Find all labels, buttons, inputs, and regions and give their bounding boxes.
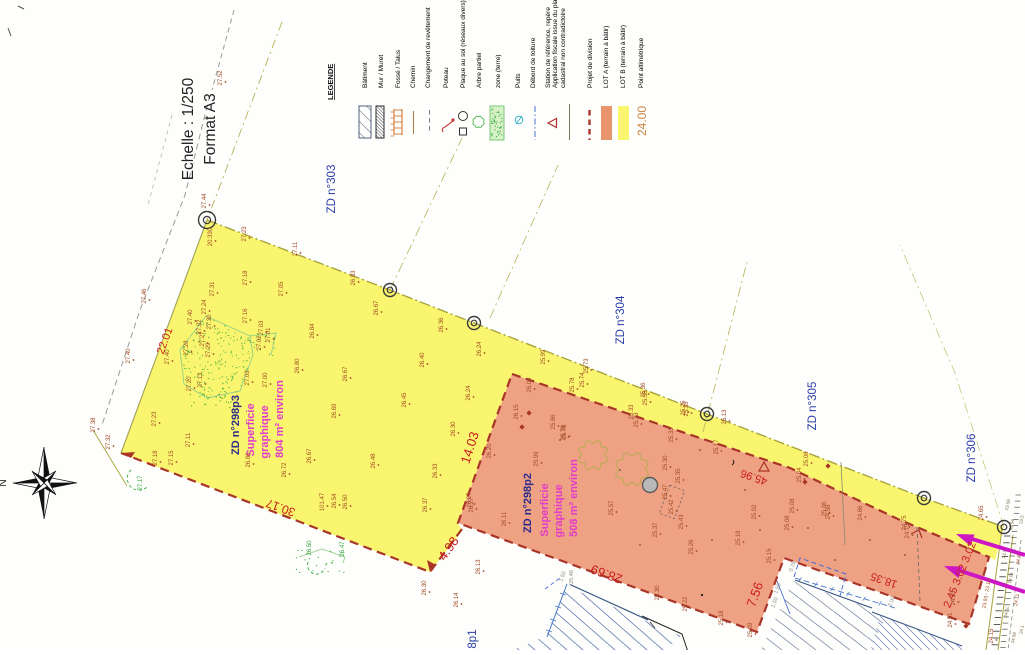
svg-text:25.30: 25.30 <box>655 585 661 601</box>
svg-text:25.17: 25.17 <box>714 439 720 455</box>
svg-text:27.03: 27.03 <box>245 370 251 386</box>
svg-text:24.00: 24.00 <box>635 106 649 136</box>
svg-text:25.73: 25.73 <box>584 358 590 374</box>
svg-text:Projet de division: Projet de division <box>587 38 594 88</box>
svg-text:26.72: 26.72 <box>282 462 288 478</box>
svg-text:Mur / Muret: Mur / Muret <box>378 55 385 88</box>
svg-text:26.20: 26.20 <box>487 443 493 459</box>
svg-text:24.75: 24.75 <box>905 523 911 539</box>
svg-text:27.52: 27.52 <box>218 70 224 86</box>
svg-text:27.05: 27.05 <box>279 281 285 297</box>
svg-text:24.66: 24.66 <box>858 505 864 521</box>
svg-text:25.99: 25.99 <box>534 451 540 467</box>
svg-text:20.330: 20.330 <box>208 227 214 246</box>
svg-text:25.35: 25.35 <box>676 468 682 484</box>
svg-text:25.47: 25.47 <box>663 484 669 500</box>
svg-text:Superficie: Superficie <box>539 483 551 536</box>
svg-text:25.08: 25.08 <box>785 515 791 531</box>
svg-text:25.04: 25.04 <box>797 467 803 483</box>
svg-text:26.11: 26.11 <box>502 511 508 526</box>
svg-text:27.24: 27.24 <box>202 299 208 315</box>
svg-text:Changement de revêtement: Changement de revêtement <box>425 7 432 88</box>
svg-text:27.23: 27.23 <box>152 411 158 427</box>
svg-text:27.11: 27.11 <box>186 432 192 447</box>
svg-text:26.67: 26.67 <box>307 448 313 464</box>
svg-text:25.09: 25.09 <box>748 622 754 638</box>
svg-text:26.80: 26.80 <box>295 358 301 374</box>
svg-text:26.30: 26.30 <box>451 421 457 437</box>
svg-text:508 m² environ: 508 m² environ <box>568 459 580 537</box>
svg-text:24.15: 24.15 <box>989 628 995 644</box>
svg-text:N: N <box>0 479 9 486</box>
svg-text:Bâtiment: Bâtiment <box>362 62 369 88</box>
svg-text:26.54: 26.54 <box>332 493 338 509</box>
svg-text:101.47: 101.47 <box>320 492 326 511</box>
svg-text:27.32: 27.32 <box>106 434 112 450</box>
svg-text:25.78: 25.78 <box>570 377 576 393</box>
svg-text:27.44: 27.44 <box>202 193 208 209</box>
svg-text:25.13: 25.13 <box>722 409 728 425</box>
svg-text:27.40: 27.40 <box>188 309 194 325</box>
svg-text:27.38: 27.38 <box>91 417 97 433</box>
svg-text:LEGENDE: LEGENDE <box>326 64 335 100</box>
svg-text:Puits: Puits <box>515 73 522 88</box>
svg-text:27.29: 27.29 <box>206 342 212 358</box>
svg-text:Point altimétrique: Point altimétrique <box>638 37 645 88</box>
svg-text:27.16: 27.16 <box>243 308 249 324</box>
svg-text:ZD n°298p2: ZD n°298p2 <box>522 473 534 533</box>
svg-text:LOT B (terrain à bâtir): LOT B (terrain à bâtir) <box>620 25 627 88</box>
svg-text:26.86: 26.86 <box>246 452 252 468</box>
svg-text:24.65: 24.65 <box>979 505 985 521</box>
svg-text:25.18: 25.18 <box>719 610 725 626</box>
svg-text:25.46: 25.46 <box>569 570 575 584</box>
svg-text:27.20: 27.20 <box>187 376 193 392</box>
svg-text:26.14: 26.14 <box>454 592 460 608</box>
svg-text:26.84: 26.84 <box>310 323 316 339</box>
svg-text:26.24: 26.24 <box>477 341 483 357</box>
svg-text:LOT A (terrain à bâtir): LOT A (terrain à bâtir) <box>603 26 610 88</box>
svg-text:26.67: 26.67 <box>374 300 380 316</box>
svg-text:Echelle : 1/250: Echelle : 1/250 <box>180 77 197 180</box>
svg-text:27.28: 27.28 <box>184 340 190 356</box>
svg-text:27.11: 27.11 <box>293 241 299 256</box>
svg-text:25.25: 25.25 <box>681 400 687 416</box>
svg-text:27.18: 27.18 <box>153 450 159 466</box>
svg-text:25.06: 25.06 <box>822 501 828 517</box>
svg-text:Station de référence, repère: Station de référence, repère <box>545 7 552 88</box>
svg-text:Arbre partiel: Arbre partiel <box>476 52 483 88</box>
svg-text:26.40: 26.40 <box>420 352 426 368</box>
svg-text:zone (terre): zone (terre) <box>495 54 502 88</box>
svg-text:804 m² environ: 804 m² environ <box>274 380 286 458</box>
svg-text:27.15: 27.15 <box>169 450 175 466</box>
svg-text:25.33: 25.33 <box>634 412 640 428</box>
svg-text:Chemin: Chemin <box>410 65 417 88</box>
svg-text:25.31: 25.31 <box>669 427 675 443</box>
svg-text:24.53: 24.53 <box>951 590 957 606</box>
svg-text:26.13: 26.13 <box>476 559 482 575</box>
svg-text:26.47: 26.47 <box>340 541 346 557</box>
svg-text:ZD n°305: ZD n°305 <box>807 382 819 431</box>
svg-text:25.42: 25.42 <box>669 499 675 515</box>
svg-text:25.36: 25.36 <box>643 390 649 406</box>
svg-text:27.40: 27.40 <box>165 349 171 365</box>
svg-text:8p1: 8p1 <box>467 629 479 648</box>
svg-text:25.78: 25.78 <box>561 425 567 441</box>
svg-text:25.30: 25.30 <box>663 455 669 471</box>
svg-text:26.50: 26.50 <box>343 494 349 510</box>
svg-text:26.50: 26.50 <box>307 540 313 556</box>
svg-text:25.99: 25.99 <box>541 349 547 365</box>
svg-text:27.18: 27.18 <box>243 270 249 286</box>
svg-text:ZD n°306: ZD n°306 <box>966 434 978 483</box>
svg-text:27.02: 27.02 <box>257 335 263 351</box>
svg-text:27.46: 27.46 <box>142 288 148 304</box>
svg-text:26.69: 26.69 <box>332 403 338 419</box>
svg-text:26.45: 26.45 <box>402 392 408 408</box>
svg-text:26.04: 26.04 <box>527 377 533 393</box>
svg-text:25.18: 25.18 <box>736 530 742 546</box>
svg-text:27.31: 27.31 <box>210 281 216 297</box>
svg-text:graphique: graphique <box>259 405 271 458</box>
svg-text:ZD n°303: ZD n°303 <box>326 165 338 214</box>
svg-text:27.17: 27.17 <box>138 475 144 491</box>
svg-text:26.24: 26.24 <box>466 385 472 401</box>
svg-text:25.26: 25.26 <box>689 539 695 555</box>
svg-text:25.08: 25.08 <box>790 498 796 514</box>
svg-text:26.15: 26.15 <box>514 404 520 420</box>
svg-text:26.36: 26.36 <box>439 317 445 333</box>
svg-text:27.00: 27.00 <box>263 372 269 388</box>
svg-text:25.43: 25.43 <box>679 514 685 530</box>
svg-text:27.01: 27.01 <box>266 327 272 343</box>
svg-text:26.33: 26.33 <box>433 463 439 479</box>
svg-text:Format A3: Format A3 <box>202 93 219 165</box>
svg-text:25.37: 25.37 <box>653 522 659 538</box>
svg-text:graphique: graphique <box>553 484 565 537</box>
svg-text:26.30: 26.30 <box>422 580 428 596</box>
svg-text:26.83: 26.83 <box>351 270 357 286</box>
svg-text:26.48: 26.48 <box>371 453 377 469</box>
svg-text:Débord de toiture: Débord de toiture <box>530 37 537 88</box>
svg-text:24.51: 24.51 <box>948 612 954 628</box>
svg-text:25.74: 25.74 <box>580 372 586 388</box>
svg-text:cadastral non contradictoire: cadastral non contradictoire <box>560 8 567 88</box>
svg-text:27.13: 27.13 <box>198 372 204 388</box>
svg-text:25.22: 25.22 <box>683 596 689 612</box>
svg-text:27.03: 27.03 <box>259 320 265 336</box>
svg-text:Superficie: Superficie <box>245 403 257 456</box>
svg-text:26.67: 26.67 <box>343 366 349 382</box>
svg-text:26.27: 26.27 <box>467 492 473 508</box>
svg-text:ZD n°298p3: ZD n°298p3 <box>230 395 242 455</box>
svg-text:Plaque au sol (réseaux divers): Plaque au sol (réseaux divers) <box>460 0 467 88</box>
svg-text:25.57: 25.57 <box>609 500 615 516</box>
svg-text:25.02: 25.02 <box>752 504 758 520</box>
svg-text:ZD n°304: ZD n°304 <box>615 295 627 344</box>
svg-text:Application fiscale issue du p: Application fiscale issue du plan <box>552 0 559 88</box>
svg-text:27.40: 27.40 <box>126 348 132 364</box>
svg-text:25.86: 25.86 <box>551 414 557 430</box>
svg-text:Fossé / Talus: Fossé / Talus <box>395 49 402 88</box>
svg-text:26.37: 26.37 <box>423 497 429 513</box>
svg-text:Poteau: Poteau <box>443 67 450 88</box>
svg-text:25.15: 25.15 <box>767 548 773 564</box>
svg-text:25.08: 25.08 <box>804 451 810 467</box>
svg-text:27.23: 27.23 <box>242 226 248 242</box>
svg-text:27.30: 27.30 <box>207 314 213 330</box>
